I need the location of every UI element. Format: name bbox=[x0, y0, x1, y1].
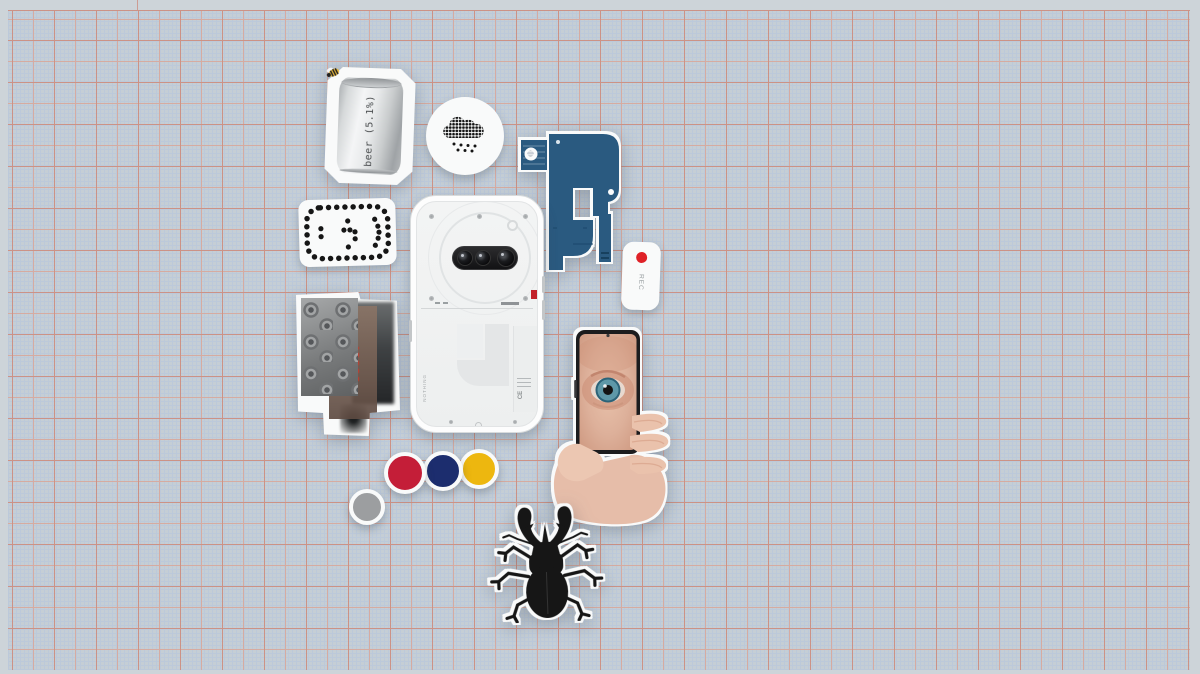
inner-column bbox=[513, 326, 538, 412]
gray-circle-sticker bbox=[349, 489, 385, 525]
pixel-weather-badge bbox=[426, 97, 504, 175]
ce-mark: CE bbox=[518, 391, 524, 399]
record-dot-icon bbox=[636, 252, 647, 263]
volume-button bbox=[409, 320, 412, 342]
screw-icon bbox=[429, 214, 434, 219]
camera-lens-icon bbox=[457, 250, 473, 266]
stag-beetle-icon bbox=[489, 505, 603, 623]
tentacle-collage-sticker bbox=[296, 292, 400, 436]
camera-lens-icon bbox=[475, 250, 491, 266]
panel-seam bbox=[421, 308, 533, 309]
pixel-cloud-rain-icon bbox=[442, 116, 488, 156]
barcode-mark bbox=[501, 302, 519, 305]
rec-pill-sticker: REC bbox=[621, 241, 661, 310]
camera-lens-icon bbox=[497, 249, 515, 267]
screw-icon bbox=[477, 214, 482, 219]
screw-icon bbox=[513, 420, 517, 424]
beer-can-sticker: beer (5.1%) bbox=[324, 66, 416, 185]
inner-shape bbox=[457, 360, 509, 386]
beer-can-sticker-backing: beer (5.1%) bbox=[324, 66, 416, 185]
dot-matrix-frame-icon bbox=[298, 198, 397, 268]
yellow-circle-sticker bbox=[459, 449, 499, 489]
navy-circle-sticker bbox=[423, 451, 463, 491]
flash-icon bbox=[507, 220, 518, 231]
beer-can-label: beer (5.1%) bbox=[363, 95, 376, 167]
tentacle-suckers-photo bbox=[301, 298, 358, 396]
tentacle-collage-backing bbox=[296, 292, 400, 436]
red-accent-square bbox=[531, 290, 538, 299]
screw-icon bbox=[523, 214, 528, 219]
dot-matrix-sticker bbox=[298, 198, 397, 268]
nothing-phone-sticker: CE NOTHING bbox=[410, 195, 544, 433]
regulatory-lines bbox=[517, 386, 531, 387]
screw-icon bbox=[449, 420, 453, 424]
grid-margin-line bbox=[137, 0, 138, 11]
port-circle bbox=[475, 422, 482, 427]
red-circle-sticker bbox=[384, 452, 426, 494]
panel-mark bbox=[443, 302, 448, 304]
panel-mark bbox=[435, 302, 440, 304]
selfie-camera-icon bbox=[606, 334, 609, 337]
phone-brand-label: NOTHING bbox=[422, 374, 427, 402]
phone-back-panel: CE NOTHING bbox=[416, 201, 538, 427]
camera-module bbox=[452, 246, 518, 270]
regulatory-lines bbox=[517, 382, 531, 383]
side-button bbox=[542, 300, 545, 320]
collage-canvas: beer (5.1%) bbox=[0, 0, 1200, 674]
inner-shape bbox=[457, 324, 483, 358]
screw-icon bbox=[429, 296, 434, 301]
rec-label: REC bbox=[637, 274, 645, 291]
fingers bbox=[630, 414, 668, 474]
power-button bbox=[542, 276, 545, 293]
beer-can: beer (5.1%) bbox=[336, 77, 403, 175]
regulatory-lines bbox=[517, 378, 531, 379]
screw-icon bbox=[523, 296, 528, 301]
stag-beetle-sticker bbox=[480, 494, 612, 624]
